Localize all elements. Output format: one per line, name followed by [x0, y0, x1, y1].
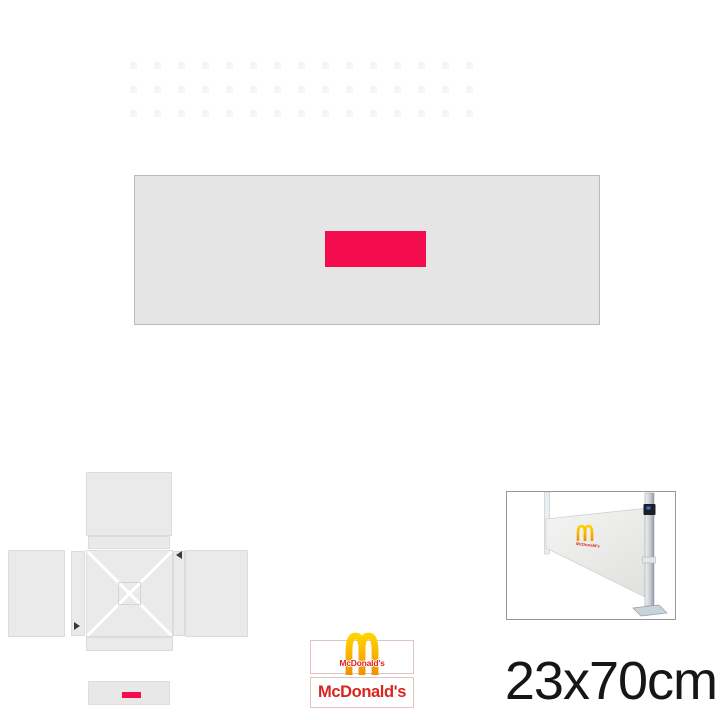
tent-roof-top-view: [86, 550, 173, 637]
halfwall-product-photo: McDonald's: [507, 492, 675, 619]
tent-valance-top: [88, 536, 170, 549]
tent-panel-top: [86, 472, 172, 536]
wordmark-text: McDonald's: [318, 683, 406, 702]
proof-sheet-page: McDonald's McDonald's: [0, 0, 720, 720]
clamp-detail: [647, 507, 651, 510]
faint-checker-pattern: [130, 62, 474, 120]
golden-arches-icon: [343, 631, 381, 675]
halfwall-print-layout: [134, 175, 600, 325]
tent-panel-right: [185, 550, 248, 637]
product-photo-box: McDonald's: [506, 491, 676, 620]
pole-band: [643, 557, 656, 563]
logo-caption-text: McDonald's: [311, 658, 413, 668]
halfwall-mini-preview: [88, 681, 170, 705]
tent-panel-left: [8, 550, 65, 637]
pole-base-plate: [633, 605, 667, 616]
tent-valance-right: [173, 551, 185, 636]
tent-unfold-diagram: [8, 472, 250, 708]
print-area-red-block: [325, 231, 426, 267]
fold-arrow-icon: [176, 551, 182, 559]
logo-thumbnail-arches: McDonald's: [310, 640, 414, 674]
mini-print-red-mark: [122, 692, 141, 698]
tent-valance-bottom: [86, 637, 173, 651]
logo-thumbnail-wordmark: McDonald's: [310, 677, 414, 708]
fold-arrow-icon: [74, 622, 80, 630]
halfwall-fabric: [546, 508, 648, 597]
size-label: 23x70cm: [490, 654, 717, 708]
roof-cross-graphic: [87, 551, 172, 636]
